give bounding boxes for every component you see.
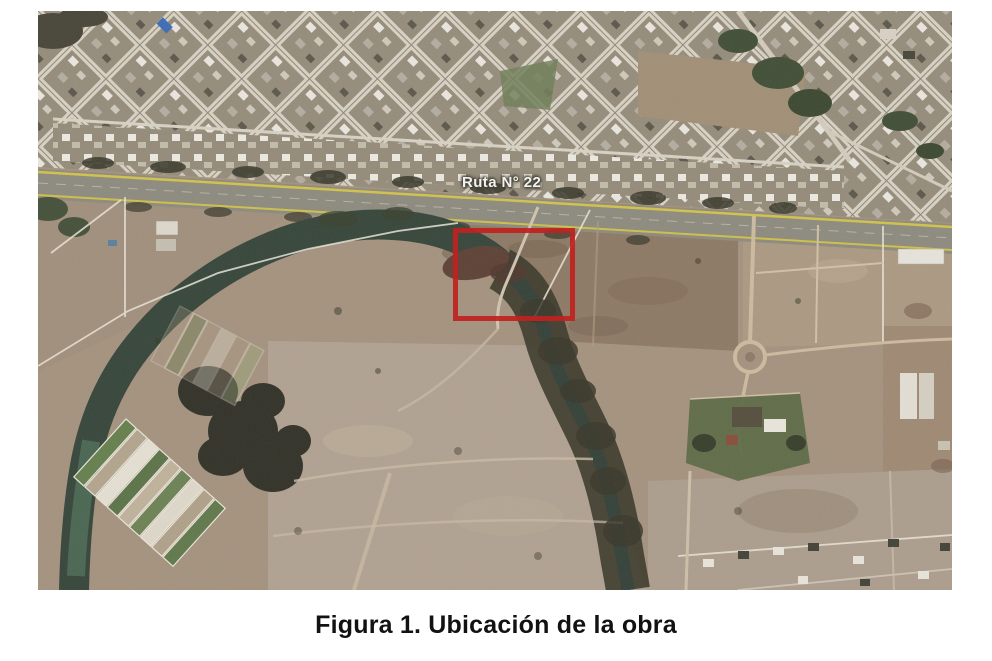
satellite-map: Ruta N° 22 <box>38 11 952 590</box>
figure-caption: Figura 1. Ubicación de la obra <box>0 611 992 640</box>
work-site-highlight-box <box>453 228 575 321</box>
document-page: Ruta N° 22 Figura 1. Ubicación de la obr… <box>0 0 992 661</box>
